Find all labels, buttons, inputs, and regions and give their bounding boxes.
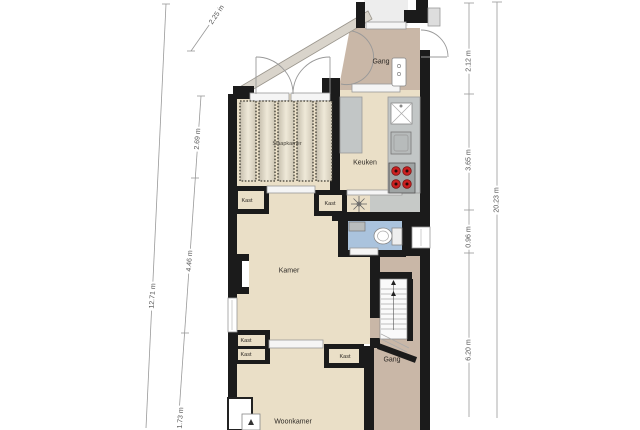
label-living-room: Woonkamer [274,419,312,426]
label-closet-1: Kast [241,198,252,204]
label-closet-2: Kast [324,201,335,207]
chimney-slot [242,261,249,287]
label-room: Kamer [279,268,300,275]
stove-icon [389,163,415,193]
label-closet-4: Kast [240,352,251,358]
label-closet-5: Kast [339,354,350,360]
wall-entry-top2 [416,0,428,13]
toilet-icon [374,228,402,245]
kitchen-cabinet [340,97,362,153]
threshold-bathroom-door [350,248,378,255]
label-kitchen: Keuken [353,160,377,167]
wall-stairs-top [378,272,412,279]
dim-right-2: 3.65 m [466,147,473,172]
dim-line-left-total [146,4,166,428]
threshold-room-living [269,340,323,348]
wall-living-hall [364,346,374,430]
wall-right-exterior [420,86,430,430]
floor-plan-drawing [0,0,640,430]
meter-cabinet-icon [392,58,406,86]
threshold-vestibule [366,22,406,29]
threshold-striped-top-left [250,93,289,101]
dim-right-3: 0.96 m [466,224,473,249]
dim-right-4: 6.20 m [466,337,473,362]
dim-right-1: 2.12 m [466,48,473,73]
wall-left-exterior [228,94,237,430]
label-hall: Gang [383,357,400,364]
wall-stairs-right [407,279,413,341]
threshold-striped-room [267,186,315,193]
sink-icon [391,103,412,124]
label-entry-hall: Gang [372,59,389,66]
door-gap-room-hall [370,318,380,338]
appliance-icon [391,132,411,154]
cistern-icon [349,222,365,231]
window-left [228,298,237,332]
wall-room-hall-upper [370,250,380,320]
dim-right-total: 20.23 m [494,185,501,214]
label-closet-3: Kast [240,338,251,344]
wall-entry-right [420,50,430,88]
wall-vestibule-left [356,2,365,28]
label-striped-room: Slaapkamer [272,141,301,147]
floor-plan: Gang Keuken Slaapkamer Kast Kast Kamer K… [0,0,640,430]
threshold-striped-top-right [291,93,330,101]
window-vestibule [428,8,440,26]
